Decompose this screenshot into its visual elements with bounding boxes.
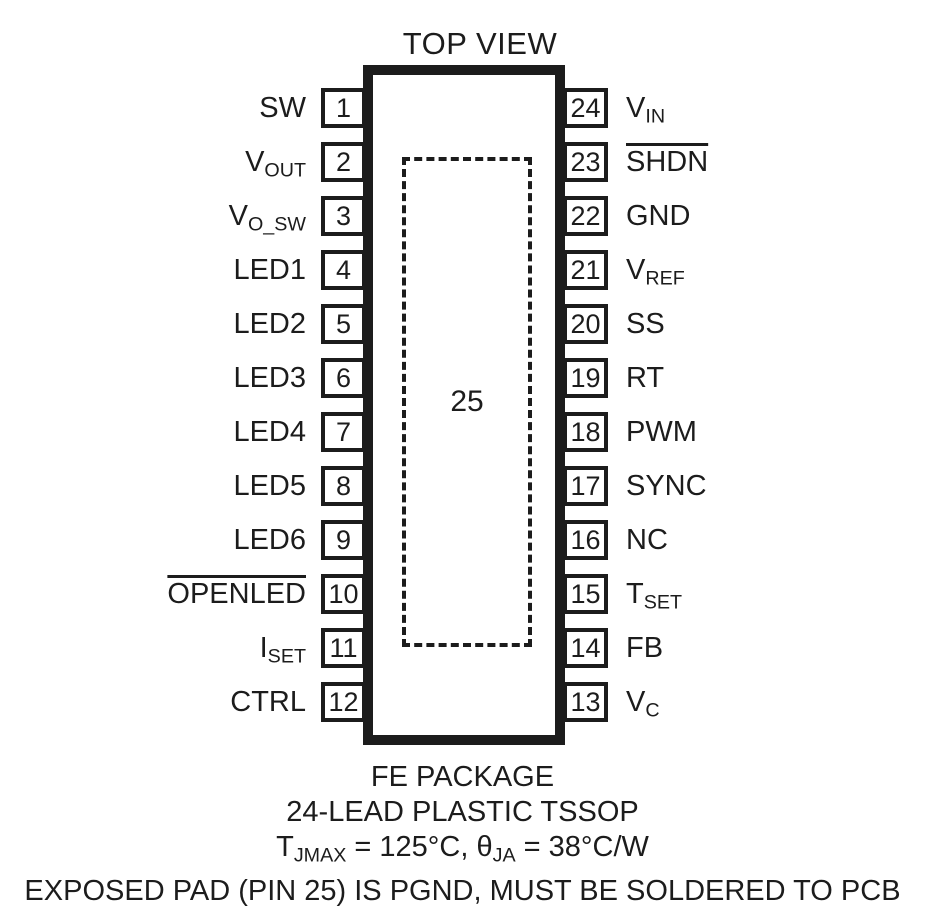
pin-16-number: 16 — [570, 527, 600, 554]
pin-6-box: 6 — [321, 358, 366, 398]
pin-12-label: CTRL — [0, 682, 306, 722]
pin-14-number: 14 — [570, 635, 600, 662]
pin-12-number: 12 — [328, 689, 358, 716]
exposed-pad-number: 25 — [450, 385, 483, 419]
pin-11-label: ISET — [0, 628, 306, 668]
exposed-pad-outline: 25 — [402, 157, 532, 647]
pin-7-number: 7 — [336, 419, 351, 446]
pin-10-box: 10 — [321, 574, 366, 614]
pin-22-number: 22 — [570, 203, 600, 230]
pin-21-number: 21 — [570, 257, 600, 284]
pin-1-label: SW — [0, 88, 306, 128]
pin-17-label: SYNC — [626, 466, 921, 506]
pin-5-label: LED2 — [0, 304, 306, 344]
pin-15-label: TSET — [626, 574, 921, 614]
pin-20-number: 20 — [570, 311, 600, 338]
pin-23-box: 23 — [563, 142, 608, 182]
pin-8-number: 8 — [336, 473, 351, 500]
pin-22-label: GND — [626, 196, 921, 236]
pin-13-label: VC — [626, 682, 921, 722]
pin-15-number: 15 — [570, 581, 600, 608]
pin-6-label: LED3 — [0, 358, 306, 398]
caption-line-3: TJMAX = 125°C, θJA = 38°C/W — [0, 830, 925, 874]
pin-21-label: VREF — [626, 250, 921, 290]
pin-4-box: 4 — [321, 250, 366, 290]
pin-19-number: 19 — [570, 365, 600, 392]
pin-8-box: 8 — [321, 466, 366, 506]
pin-10-number: 10 — [328, 581, 358, 608]
pin-7-label: LED4 — [0, 412, 306, 452]
pin-17-box: 17 — [563, 466, 608, 506]
pin-4-label: LED1 — [0, 250, 306, 290]
pin-20-box: 20 — [563, 304, 608, 344]
pin-18-number: 18 — [570, 419, 600, 446]
pin-19-box: 19 — [563, 358, 608, 398]
pin-24-label: VIN — [626, 88, 921, 128]
pin-14-label: FB — [626, 628, 921, 668]
pin-16-label: NC — [626, 520, 921, 560]
pin-23-number: 23 — [570, 149, 600, 176]
pin-13-number: 13 — [570, 689, 600, 716]
diagram-title: TOP VIEW — [330, 26, 630, 62]
pin-23-label: SHDN — [626, 142, 921, 182]
pin-5-number: 5 — [336, 311, 351, 338]
pin-24-number: 24 — [570, 95, 600, 122]
pin-9-box: 9 — [321, 520, 366, 560]
caption-line-2: 24-LEAD PLASTIC TSSOP — [0, 795, 925, 830]
pin-6-number: 6 — [336, 365, 351, 392]
pin-1-number: 1 — [336, 95, 351, 122]
pin-4-number: 4 — [336, 257, 351, 284]
pin-3-box: 3 — [321, 196, 366, 236]
pin-8-label: LED5 — [0, 466, 306, 506]
pin-10-label: OPENLED — [0, 574, 306, 614]
pin-2-label: VOUT — [0, 142, 306, 182]
pin-2-box: 2 — [321, 142, 366, 182]
pin-21-box: 21 — [563, 250, 608, 290]
pinout-diagram: TOP VIEW 25 1SW2VOUT3VO_SW4LED15LED26LED… — [0, 0, 925, 917]
pin-17-number: 17 — [570, 473, 600, 500]
pin-14-box: 14 — [563, 628, 608, 668]
pin-15-box: 15 — [563, 574, 608, 614]
pin-13-box: 13 — [563, 682, 608, 722]
pin-20-label: SS — [626, 304, 921, 344]
pin-18-box: 18 — [563, 412, 608, 452]
pin-11-box: 11 — [321, 628, 366, 668]
caption-line-4: EXPOSED PAD (PIN 25) IS PGND, MUST BE SO… — [0, 874, 925, 909]
pin-2-number: 2 — [336, 149, 351, 176]
pin-1-box: 1 — [321, 88, 366, 128]
pin-3-label: VO_SW — [0, 196, 306, 236]
pin-11-number: 11 — [329, 635, 357, 662]
pin-24-box: 24 — [563, 88, 608, 128]
pin-12-box: 12 — [321, 682, 366, 722]
pin-9-label: LED6 — [0, 520, 306, 560]
pin-18-label: PWM — [626, 412, 921, 452]
pin-16-box: 16 — [563, 520, 608, 560]
caption-line-1: FE PACKAGE — [0, 760, 925, 795]
pin-22-box: 22 — [563, 196, 608, 236]
package-caption: FE PACKAGE24-LEAD PLASTIC TSSOPTJMAX = 1… — [0, 760, 925, 909]
pin-7-box: 7 — [321, 412, 366, 452]
pin-9-number: 9 — [336, 527, 351, 554]
pin-19-label: RT — [626, 358, 921, 398]
pin-5-box: 5 — [321, 304, 366, 344]
pin-3-number: 3 — [336, 203, 351, 230]
